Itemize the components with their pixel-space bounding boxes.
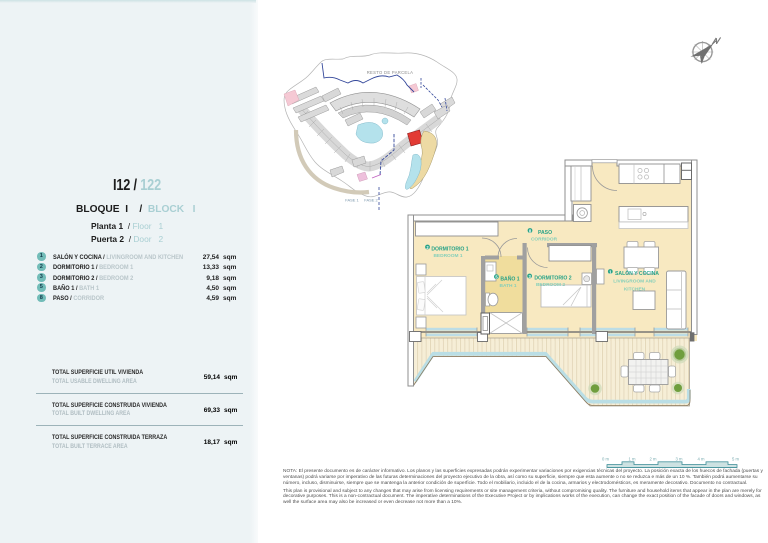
svg-text:1 m: 1 m — [629, 457, 636, 462]
svg-text:BEDROOM 2: BEDROOM 2 — [536, 282, 565, 288]
svg-text:KITCHEN: KITCHEN — [624, 286, 646, 292]
svg-text:CORRIDOR: CORRIDOR — [531, 237, 558, 243]
svg-text:FASE 2: FASE 2 — [364, 198, 378, 203]
svg-text:BEDROOM 1: BEDROOM 1 — [433, 253, 462, 259]
svg-text:0 m: 0 m — [602, 457, 609, 462]
svg-text:SALÓN Y COCINA: SALÓN Y COCINA — [615, 269, 659, 277]
svg-text:RESTO DE PARCELA: RESTO DE PARCELA — [367, 70, 414, 75]
svg-text:PASO: PASO — [538, 230, 552, 236]
svg-text:2 m: 2 m — [650, 457, 657, 462]
svg-text:DORMITORIO 1: DORMITORIO 1 — [431, 246, 468, 252]
svg-text:DORMITORIO 2: DORMITORIO 2 — [534, 275, 571, 281]
svg-text:5 m: 5 m — [732, 457, 739, 462]
svg-text:3 m: 3 m — [676, 457, 683, 462]
svg-text:BAÑO 1: BAÑO 1 — [500, 275, 519, 282]
svg-text:BATH 1: BATH 1 — [500, 283, 517, 289]
svg-text:FASE 1: FASE 1 — [345, 198, 359, 203]
svg-text:4 m: 4 m — [698, 457, 705, 462]
svg-text:LIVINGROOM AND: LIVINGROOM AND — [613, 279, 656, 285]
